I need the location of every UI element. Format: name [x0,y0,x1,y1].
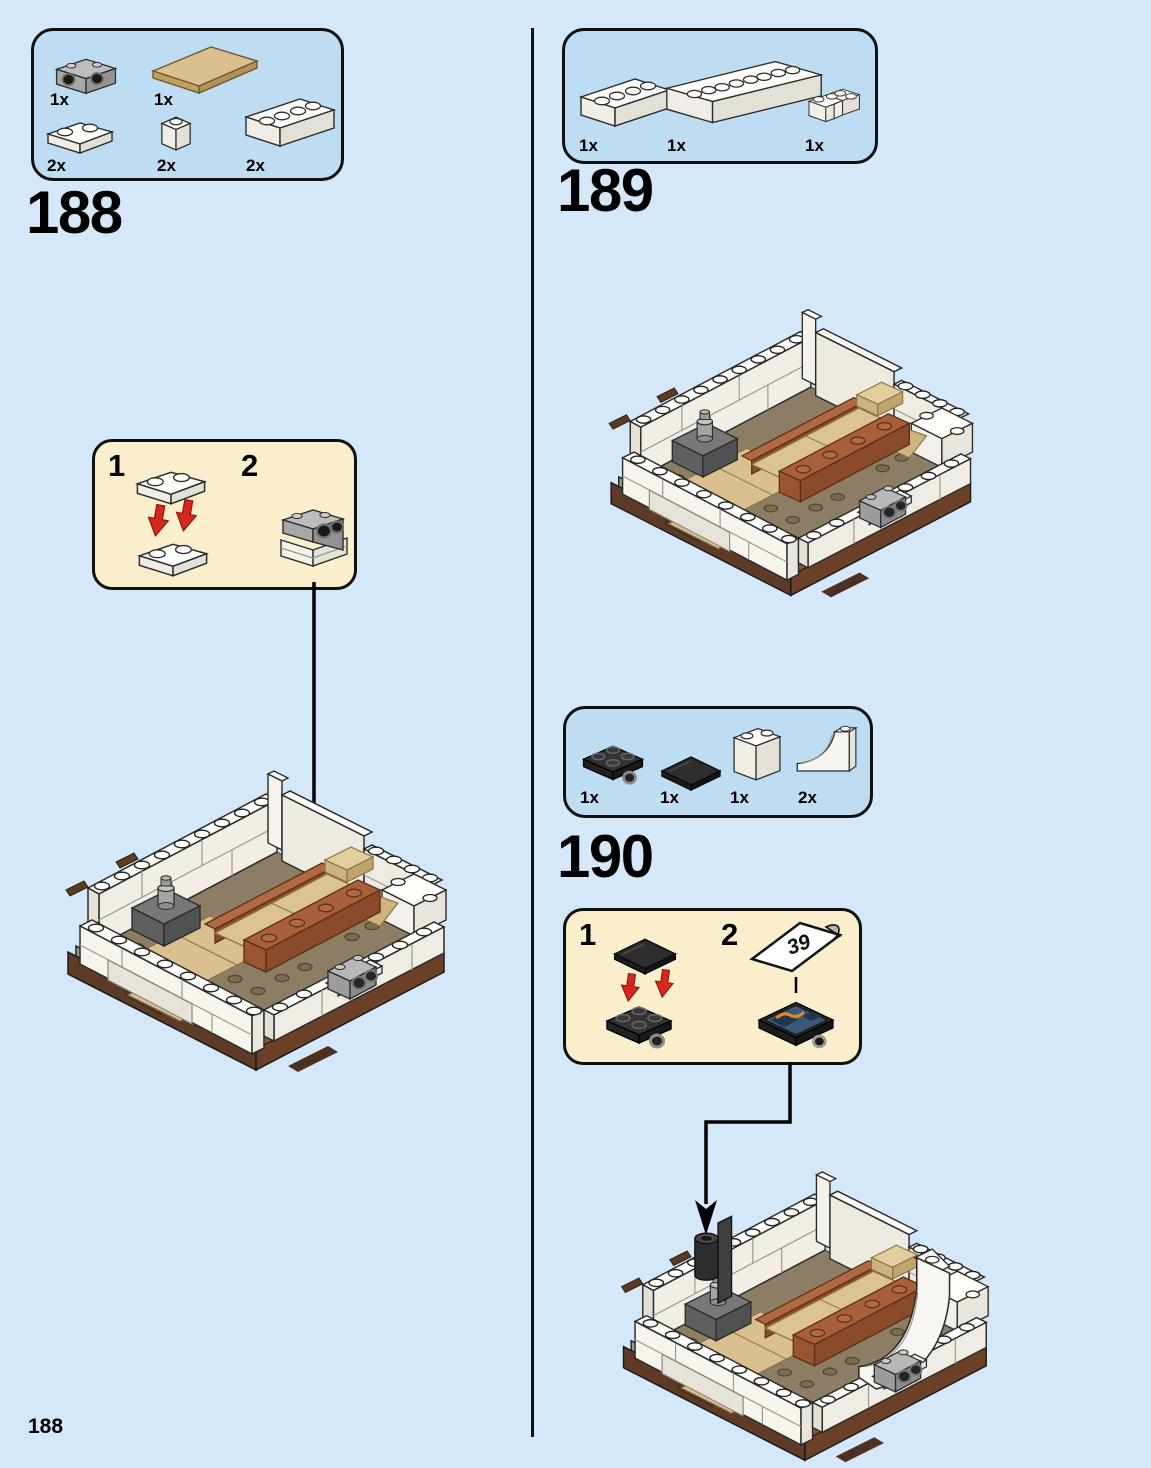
instruction-page: 1x 1x 2x 2x [0,0,1151,1468]
camera-subassembly [273,498,357,574]
step-heading-190: 190 [557,827,653,887]
callout-step-number: 1 [579,919,596,950]
part-white-brick-1x2x2 [728,723,786,789]
stickered-turntable [750,987,842,1057]
callout-step-number: 2 [241,450,258,481]
sticker-sheet-39: 39 [746,915,846,985]
part-black-turntable [600,995,678,1053]
callout-190: 1 2 39 [563,908,862,1065]
qty-label: 2x [798,789,817,806]
parts-box-188: 1x 1x 2x 2x [31,28,344,181]
parts-box-189: 1x 1x 1x [562,28,878,164]
step-heading-188: 188 [26,183,122,243]
qty-label: 1x [667,137,686,154]
step-heading-189: 189 [557,161,653,221]
column-divider [531,28,534,1437]
callout-188: 1 2 [92,439,357,590]
assembly-188 [42,740,462,1080]
part-white-plate-1x2 [44,117,116,157]
qty-label: 1x [805,137,824,154]
part-white-plate-1x2 [135,538,211,580]
part-white-brick-1x4 [577,73,673,131]
qty-label: 1x [660,789,679,806]
part-white-corner-brick [803,79,869,133]
part-white-brick-1x8 [663,53,825,133]
part-white-arch-brick [794,723,864,775]
qty-label: 1x [50,91,69,108]
part-white-brick-1x1 [154,111,198,157]
qty-label: 2x [246,157,265,174]
assembly-arrow [144,502,172,539]
part-white-brick-1x4 [242,93,338,151]
qty-label: 2x [47,157,66,174]
parts-box-190: 1x 1x 1x 2x [563,706,873,818]
callout-step-number: 1 [108,450,125,481]
assembly-189 [586,280,988,605]
qty-label: 1x [730,789,749,806]
assembly-arrow [172,497,200,534]
qty-label: 2x [157,157,176,174]
qty-label: 1x [580,789,599,806]
part-black-turntable [578,735,648,789]
part-black-tile-2x2 [658,749,724,793]
assembly-190 [598,1142,1004,1468]
callout-step-number: 2 [721,919,738,950]
page-number: 188 [28,1416,63,1437]
qty-label: 1x [154,91,173,108]
qty-label: 1x [579,137,598,154]
